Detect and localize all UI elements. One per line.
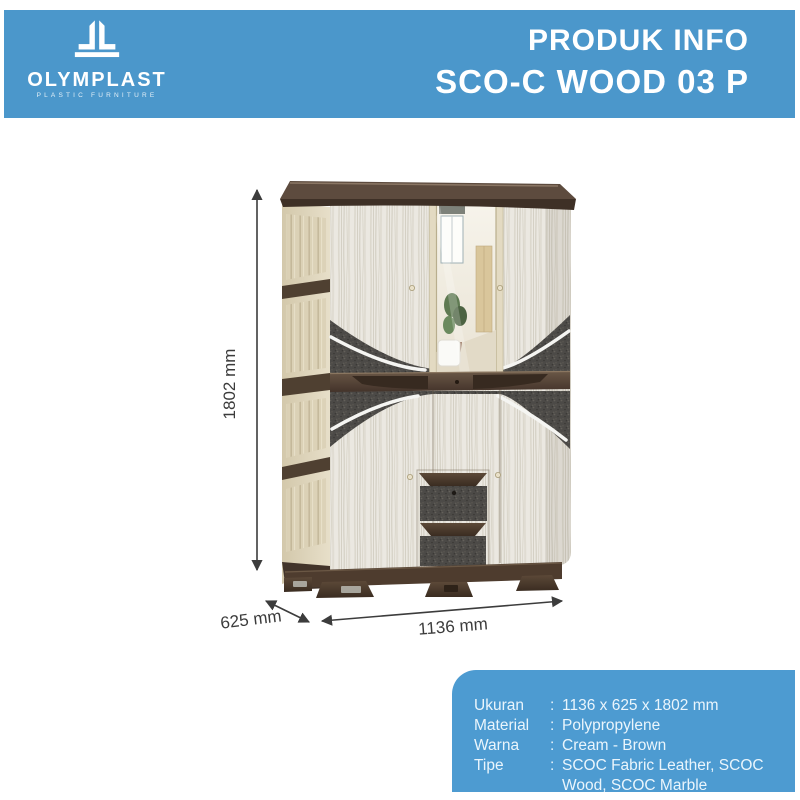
drawer-front-bottom bbox=[420, 536, 486, 566]
spec-value: SCOC Fabric Leather, SCOC Wood, SCOC Mar… bbox=[562, 756, 787, 796]
middle-divider bbox=[330, 371, 570, 392]
spec-label: Ukuran bbox=[474, 696, 550, 716]
spec-row-tipe: Tipe : SCOC Fabric Leather, SCOC Wood, S… bbox=[474, 756, 787, 796]
mirror-door bbox=[430, 194, 504, 373]
height-dimension-label: 1802 mm bbox=[220, 324, 240, 444]
wardrobe-side-panel bbox=[282, 202, 330, 590]
wardrobe-top bbox=[280, 181, 576, 210]
spec-label: Material bbox=[474, 716, 550, 736]
spec-panel: Ukuran : 1136 x 625 x 1802 mm Material :… bbox=[452, 670, 795, 792]
drawer-handle-bottom bbox=[420, 523, 486, 536]
spec-label: Tipe bbox=[474, 756, 550, 776]
wardrobe bbox=[280, 181, 576, 598]
spec-value: Cream - Brown bbox=[562, 736, 787, 756]
spec-row-ukuran: Ukuran : 1136 x 625 x 1802 mm bbox=[474, 696, 787, 716]
spec-value: Polypropylene bbox=[562, 716, 787, 736]
spec-row-material: Material : Polypropylene bbox=[474, 716, 787, 736]
spec-label: Warna bbox=[474, 736, 550, 756]
spec-value: 1136 x 625 x 1802 mm bbox=[562, 696, 787, 716]
spec-row-warna: Warna : Cream - Brown bbox=[474, 736, 787, 756]
drawer-handle-top bbox=[419, 473, 487, 486]
product-info-page: OLYMPLAST PLASTIC FURNITURE PRODUK INFO … bbox=[0, 0, 800, 800]
